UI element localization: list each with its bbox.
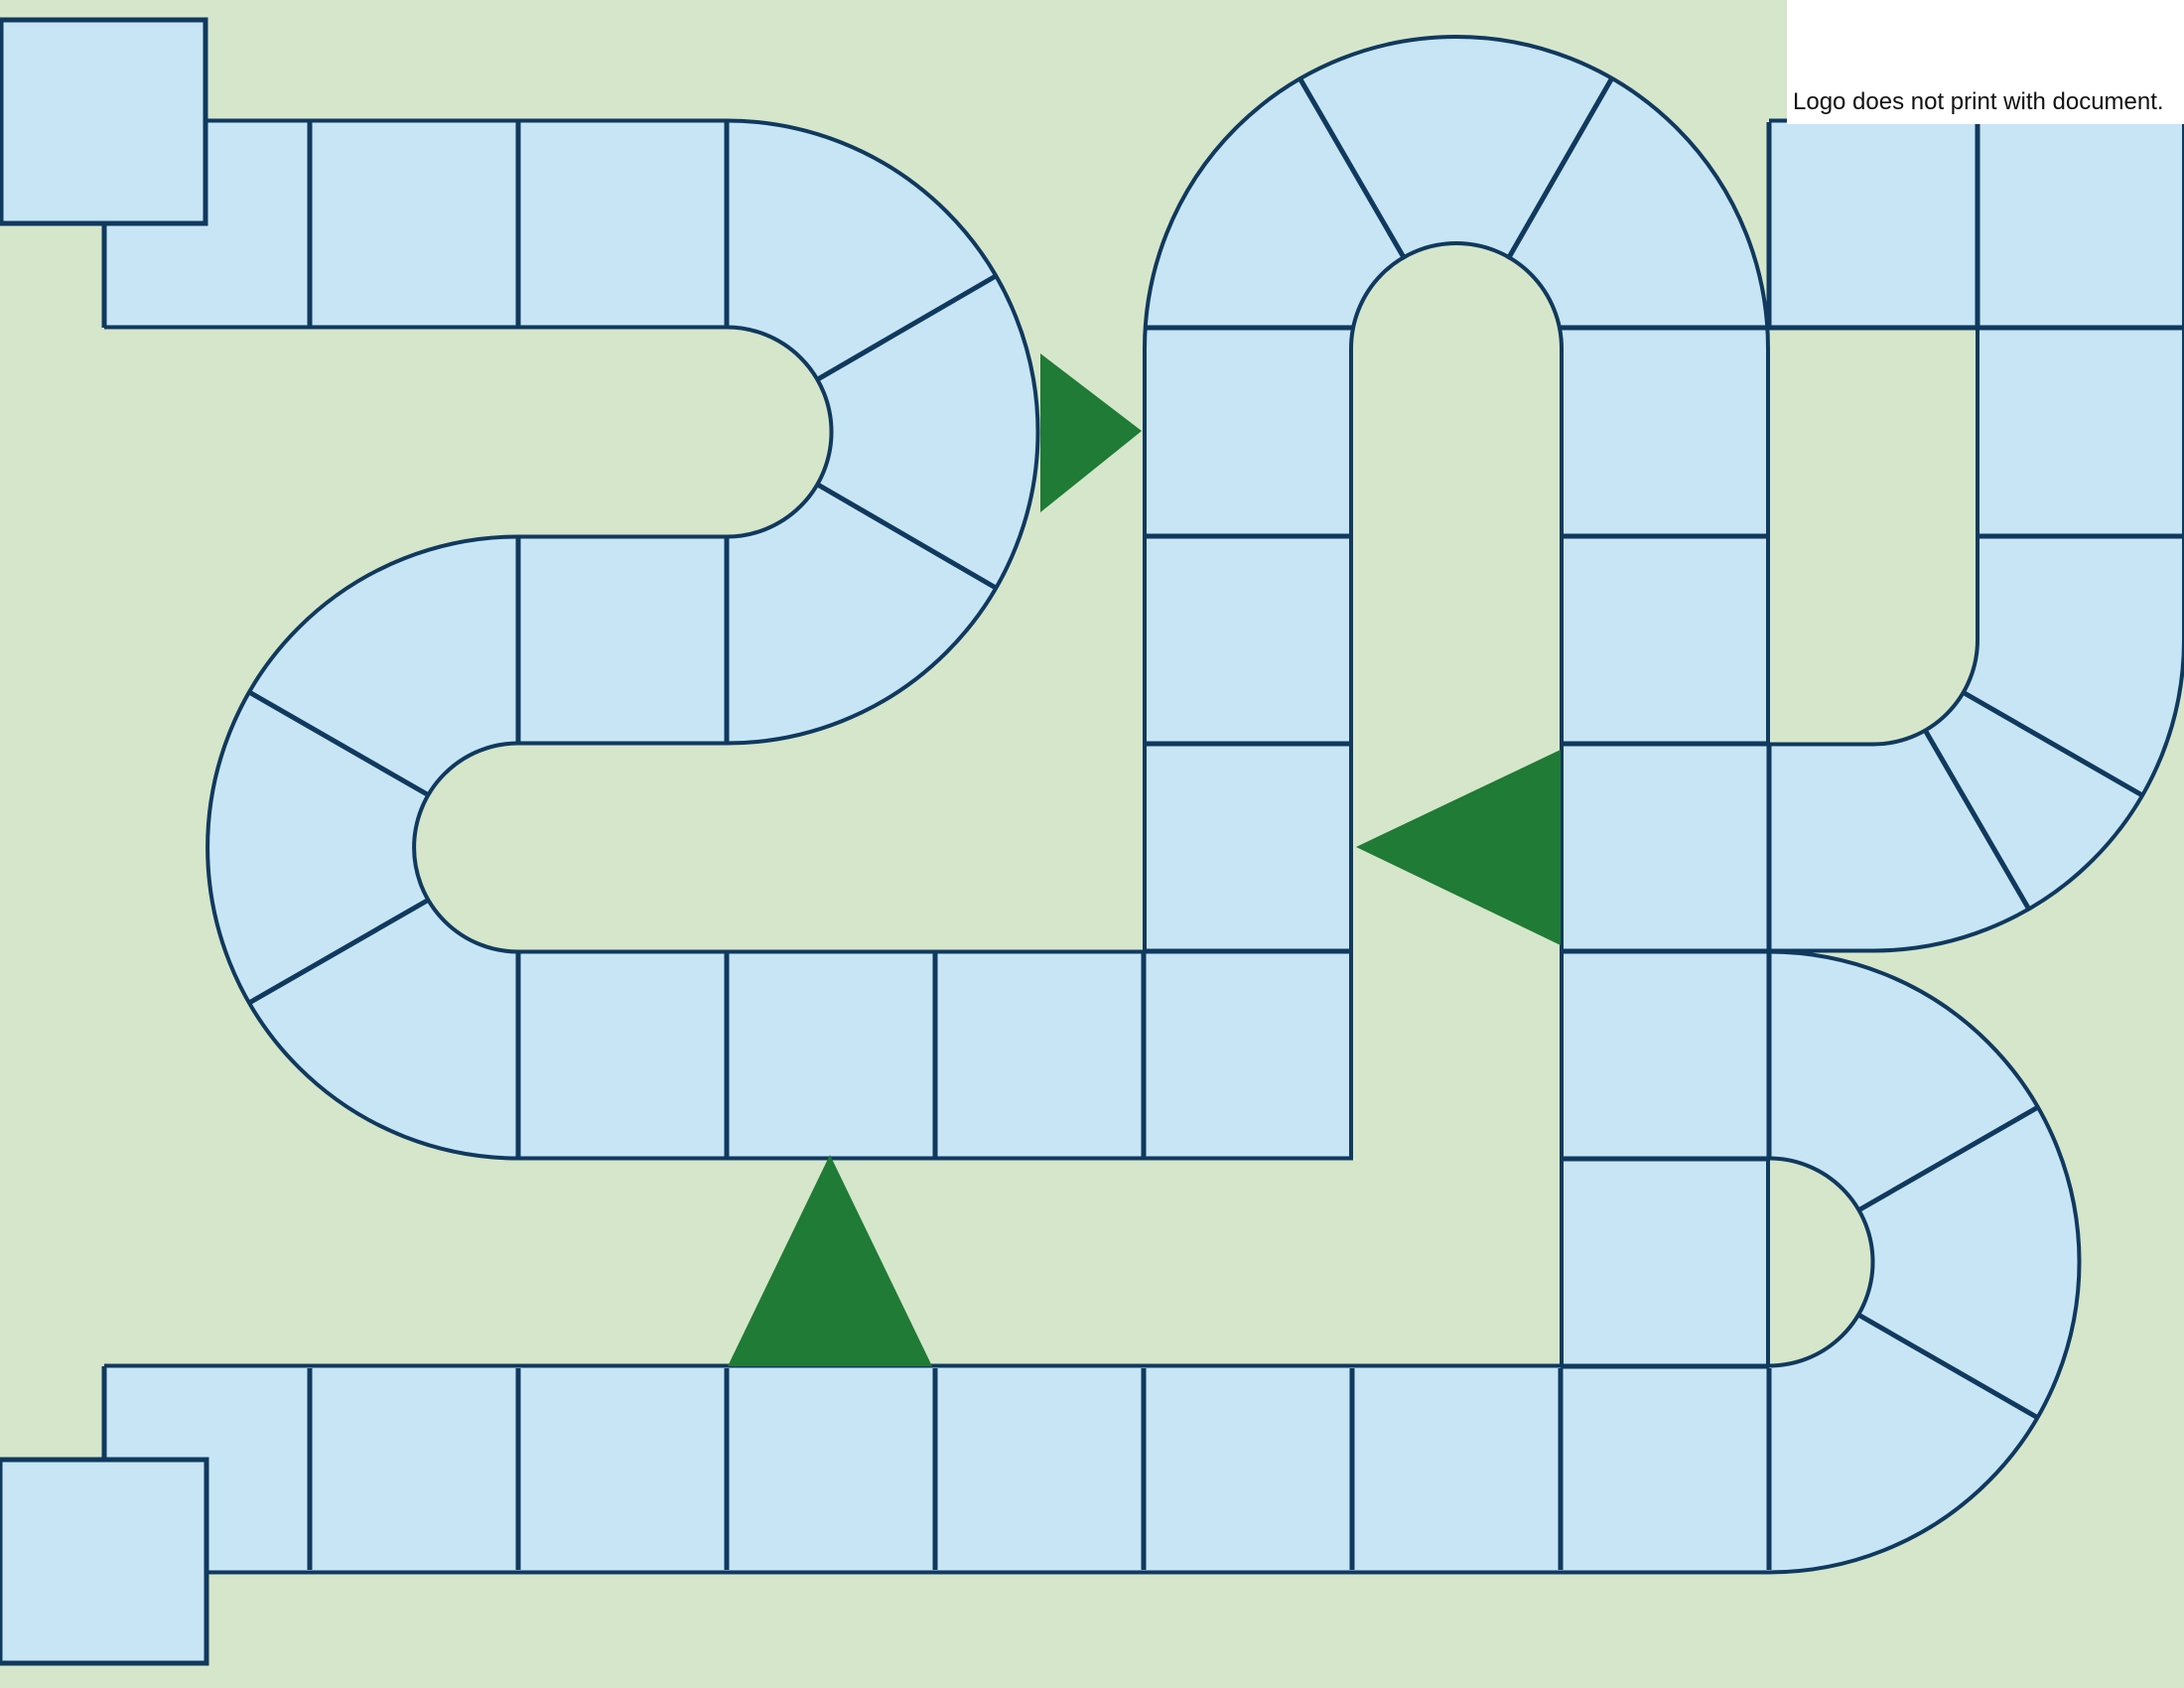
game-board-page: Logo does not print with document.: [0, 0, 2184, 1688]
end-square: [0, 1460, 206, 1663]
logo-note: Logo does not print with document.: [1793, 88, 2164, 115]
start-square: [1, 20, 205, 223]
game-board-svg: Logo does not print with document.: [0, 0, 2184, 1688]
